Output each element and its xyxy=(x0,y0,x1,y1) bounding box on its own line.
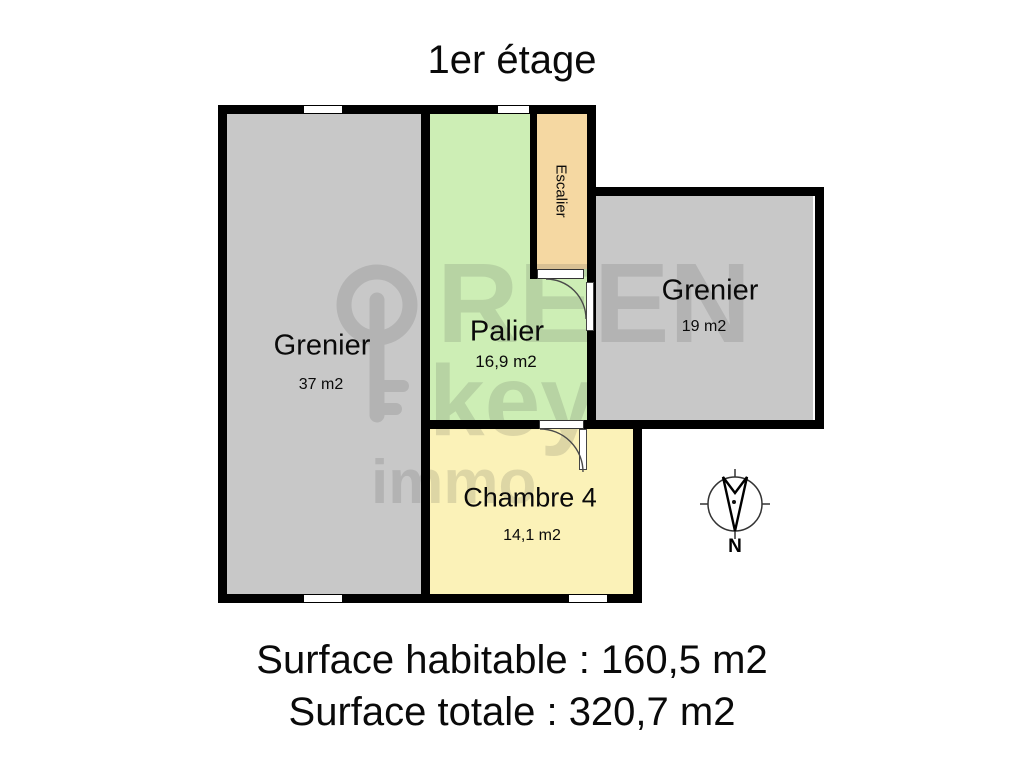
wall-escalier-left xyxy=(530,105,537,279)
wall-left xyxy=(218,105,227,603)
room-label-grenier-right: Grenier xyxy=(662,275,759,308)
window-marker xyxy=(303,594,343,603)
door-leaf-escalier xyxy=(586,282,594,331)
door-opening-escalier xyxy=(537,269,584,279)
room-area-chambre-4: 14,1 m2 xyxy=(503,527,561,545)
room-label-chambre-4: Chambre 4 xyxy=(463,483,597,514)
room-label-escalier: Escalier xyxy=(553,164,570,217)
window-marker xyxy=(303,105,343,114)
room-area-palier: 16,9 m2 xyxy=(475,352,536,372)
room-label-palier: Palier xyxy=(470,316,544,349)
compass-icon: N xyxy=(695,460,775,555)
window-marker xyxy=(497,105,530,114)
wall-divider-grenier-palier xyxy=(421,114,430,594)
wall-top xyxy=(218,105,596,114)
wall-grenier-right-top xyxy=(587,187,824,196)
wall-grenier-right-side xyxy=(815,187,824,429)
surface-summary: Surface habitable : 160,5 m2 Surface tot… xyxy=(0,634,1024,738)
compass-center-dot xyxy=(732,500,736,504)
door-leaf-chambre xyxy=(579,429,587,470)
page-title: 1er étage xyxy=(0,38,1024,83)
surface-totale: Surface totale : 320,7 m2 xyxy=(0,686,1024,738)
window-marker xyxy=(568,594,608,603)
compass-label: N xyxy=(728,536,742,555)
room-label-grenier-left: Grenier xyxy=(274,330,371,363)
room-grenier-right xyxy=(596,196,813,420)
room-area-grenier-left: 37 m2 xyxy=(299,376,343,394)
door-opening-chambre xyxy=(539,420,584,429)
wall-chambre-right xyxy=(633,420,642,603)
wall-mid-horizontal xyxy=(421,420,824,429)
wall-palier-right xyxy=(587,105,596,429)
room-area-grenier-right: 19 m2 xyxy=(682,318,726,336)
surface-habitable: Surface habitable : 160,5 m2 xyxy=(0,634,1024,686)
